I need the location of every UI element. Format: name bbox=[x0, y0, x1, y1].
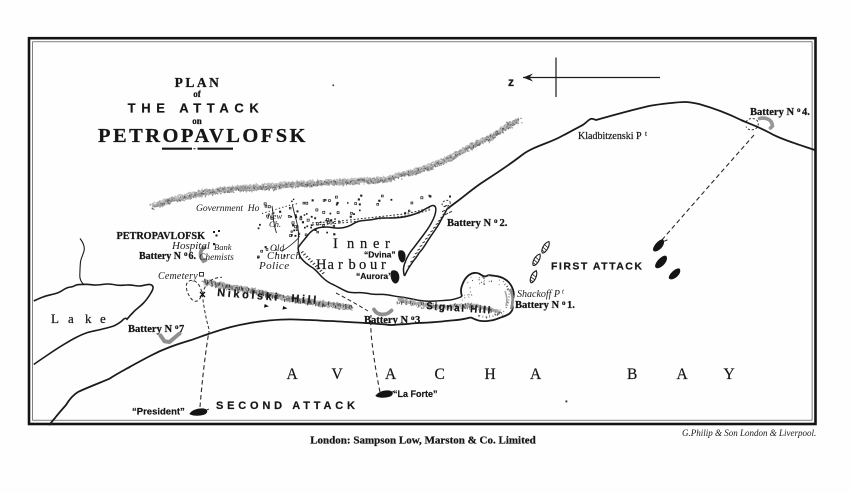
svg-text:Shackoff P: Shackoff P bbox=[517, 289, 560, 300]
svg-text:Battery N: Battery N bbox=[750, 107, 794, 118]
svg-text:Kladbitzenski P: Kladbitzenski P bbox=[578, 131, 642, 142]
svg-text:G.Philip & Son London & Liverp: G.Philip & Son London & Liverpool. bbox=[682, 428, 816, 438]
svg-text:Battery N: Battery N bbox=[447, 218, 491, 229]
svg-text:“La Forte”: “La Forte” bbox=[393, 389, 438, 399]
svg-text:SECOND ATTACK: SECOND ATTACK bbox=[216, 400, 359, 412]
svg-text:o: o bbox=[184, 250, 188, 258]
svg-text:7: 7 bbox=[179, 324, 184, 335]
svg-text:FIRST ATTACK: FIRST ATTACK bbox=[551, 261, 643, 273]
svg-text:6.: 6. bbox=[189, 251, 197, 262]
svg-text:Battery N: Battery N bbox=[139, 251, 182, 262]
svg-text:Battery N: Battery N bbox=[515, 300, 559, 311]
svg-text:Chemists: Chemists bbox=[199, 253, 234, 263]
svg-text:3: 3 bbox=[415, 315, 420, 326]
svg-text:o: o bbox=[797, 106, 801, 114]
svg-text:Bank: Bank bbox=[214, 242, 232, 252]
svg-text:Government Ho: Government Ho bbox=[196, 204, 260, 214]
svg-text:t: t bbox=[645, 130, 647, 138]
svg-text:2.: 2. bbox=[500, 218, 508, 229]
svg-text:THE ATTACK: THE ATTACK bbox=[128, 101, 265, 116]
svg-text:4.: 4. bbox=[802, 107, 810, 118]
svg-text:z: z bbox=[508, 75, 514, 89]
svg-text:PLAN: PLAN bbox=[175, 75, 222, 90]
svg-text:Ch.: Ch. bbox=[269, 219, 281, 229]
svg-text:Battery N: Battery N bbox=[364, 315, 408, 326]
svg-text:1.: 1. bbox=[567, 300, 575, 311]
svg-text:“Aurora”: “Aurora” bbox=[356, 271, 392, 281]
svg-text:London: Sampson Low, Marston &: London: Sampson Low, Marston & Co. Limit… bbox=[310, 435, 536, 447]
svg-text:“Dvina”: “Dvina” bbox=[364, 250, 396, 260]
svg-text:Battery N: Battery N bbox=[128, 324, 172, 335]
svg-text:of: of bbox=[193, 89, 202, 99]
svg-text:o: o bbox=[562, 299, 566, 307]
svg-text:“President”: “President” bbox=[132, 407, 185, 418]
svg-text:o: o bbox=[494, 217, 498, 225]
svg-text:PETROPAVLOFSK: PETROPAVLOFSK bbox=[98, 125, 308, 147]
svg-text:Police: Police bbox=[258, 260, 290, 272]
svg-text:Cemetery: Cemetery bbox=[158, 271, 198, 282]
